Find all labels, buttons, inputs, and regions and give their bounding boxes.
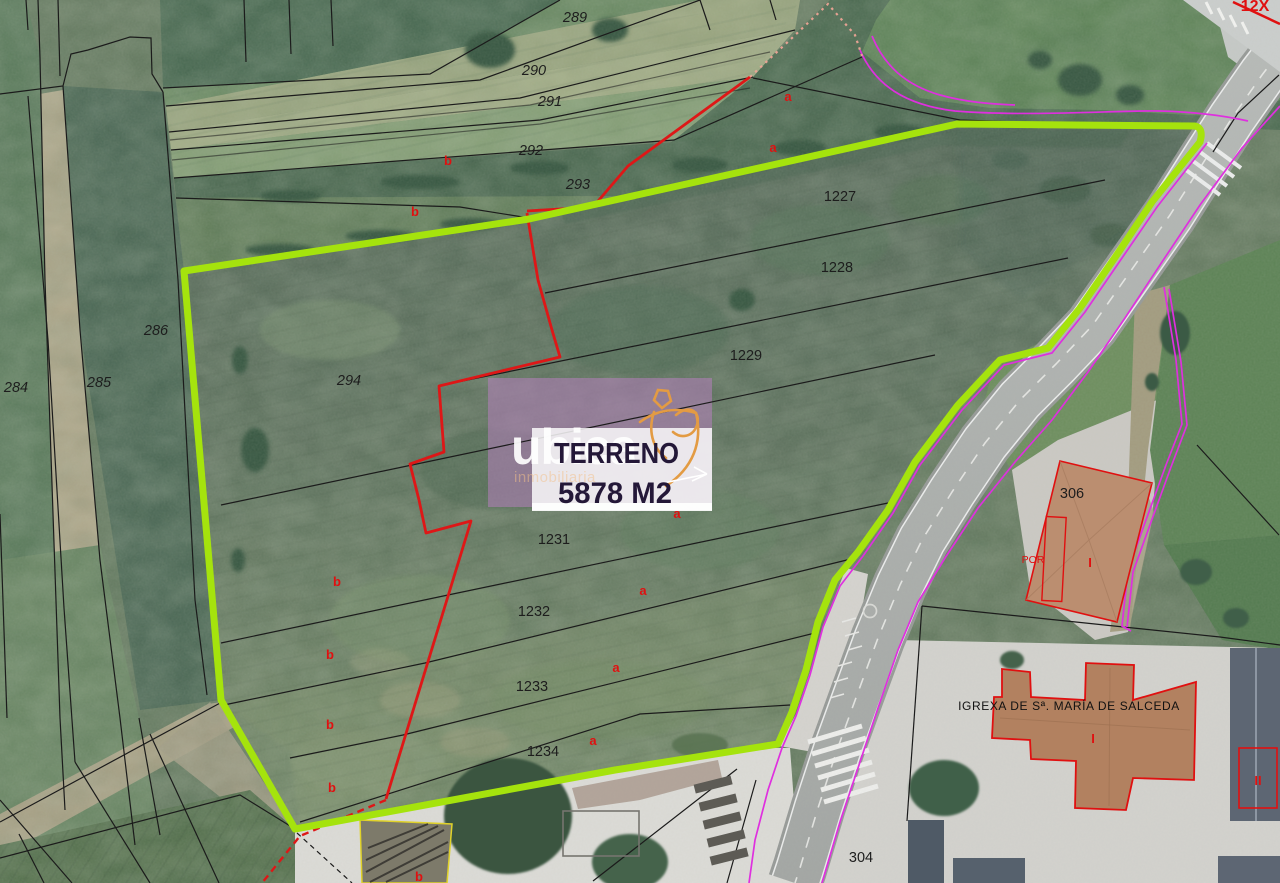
svg-text:b: b	[444, 153, 452, 168]
svg-text:1229: 1229	[730, 348, 762, 364]
svg-text:b: b	[326, 647, 334, 662]
svg-text:1227: 1227	[824, 189, 856, 205]
svg-text:b: b	[333, 574, 341, 589]
svg-text:a: a	[589, 733, 597, 748]
svg-text:TERRENO: TERRENO	[554, 438, 679, 470]
svg-text:304: 304	[849, 850, 873, 866]
svg-text:289: 289	[562, 10, 587, 26]
svg-text:1231: 1231	[538, 532, 570, 548]
svg-text:285: 285	[86, 375, 112, 391]
svg-text:1232: 1232	[518, 604, 550, 620]
svg-text:306: 306	[1060, 486, 1084, 502]
svg-text:I: I	[1088, 555, 1092, 570]
svg-text:1228: 1228	[821, 260, 853, 276]
svg-text:284: 284	[3, 380, 28, 396]
svg-text:POR: POR	[1022, 554, 1045, 566]
svg-text:a: a	[784, 89, 792, 104]
svg-text:b: b	[328, 780, 336, 795]
svg-text:b: b	[415, 869, 423, 883]
svg-text:I: I	[1091, 731, 1095, 746]
svg-text:293: 293	[565, 177, 590, 193]
svg-text:292: 292	[518, 143, 543, 159]
svg-text:II: II	[1254, 773, 1261, 788]
svg-text:a: a	[769, 140, 777, 155]
svg-text:b: b	[326, 717, 334, 732]
svg-text:IGREXA DE Sª. MARÍA DE SALCEDA: IGREXA DE Sª. MARÍA DE SALCEDA	[958, 698, 1180, 713]
svg-text:a: a	[639, 583, 647, 598]
svg-text:290: 290	[521, 63, 546, 79]
svg-text:1233: 1233	[516, 679, 548, 695]
svg-text:286: 286	[143, 323, 169, 339]
svg-text:5878 M2: 5878 M2	[558, 477, 672, 510]
svg-text:a: a	[612, 660, 620, 675]
svg-text:291: 291	[537, 94, 562, 110]
svg-text:294: 294	[336, 373, 361, 389]
svg-text:b: b	[411, 204, 419, 219]
svg-text:1234: 1234	[527, 744, 559, 760]
svg-text:12X: 12X	[1241, 0, 1270, 15]
